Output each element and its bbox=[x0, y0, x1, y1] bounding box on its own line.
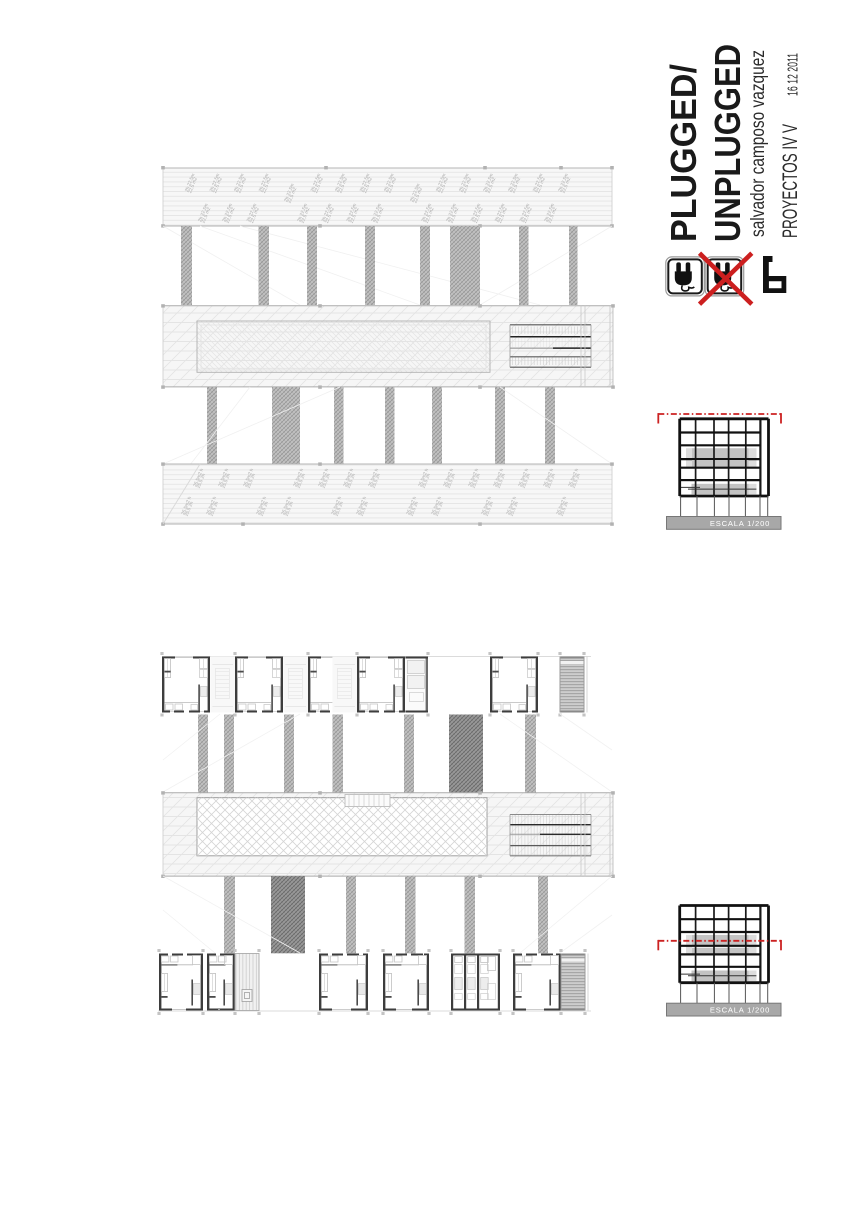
svg-text:PROYECTOS IV V: PROYECTOS IV V bbox=[779, 124, 802, 238]
svg-text:ESCALA 1/200: ESCALA 1/200 bbox=[710, 519, 770, 528]
svg-text:ESCALA 1/200: ESCALA 1/200 bbox=[710, 1006, 770, 1015]
svg-text:UNPLUGGED: UNPLUGGED bbox=[707, 44, 748, 242]
svg-text:PLUGGED/: PLUGGED/ bbox=[663, 64, 704, 242]
svg-text:16 12 2011: 16 12 2011 bbox=[785, 53, 802, 96]
svg-text:salvador camposo vazquez: salvador camposo vazquez bbox=[747, 50, 769, 237]
